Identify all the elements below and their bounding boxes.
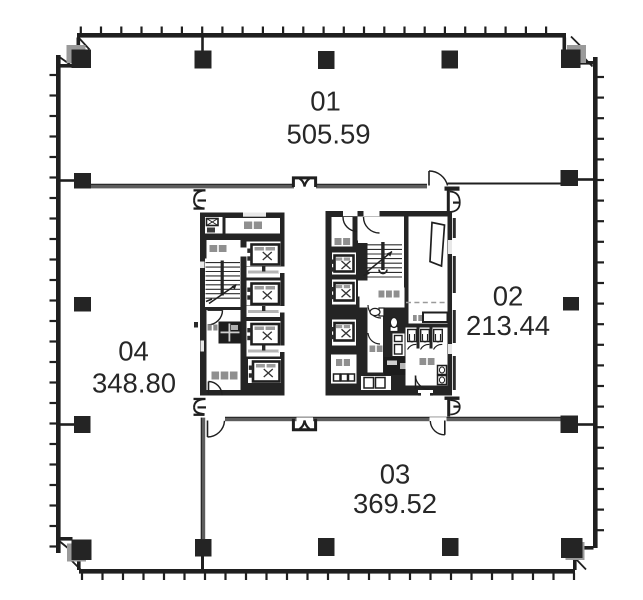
svg-text:505.59: 505.59 bbox=[286, 119, 370, 150]
svg-text:369.52: 369.52 bbox=[353, 488, 437, 519]
svg-text:348.80: 348.80 bbox=[92, 368, 176, 399]
svg-text:03: 03 bbox=[380, 459, 411, 490]
svg-text:01: 01 bbox=[310, 86, 341, 117]
svg-text:213.44: 213.44 bbox=[466, 310, 550, 341]
svg-text:02: 02 bbox=[493, 281, 524, 312]
svg-text:04: 04 bbox=[118, 336, 149, 367]
